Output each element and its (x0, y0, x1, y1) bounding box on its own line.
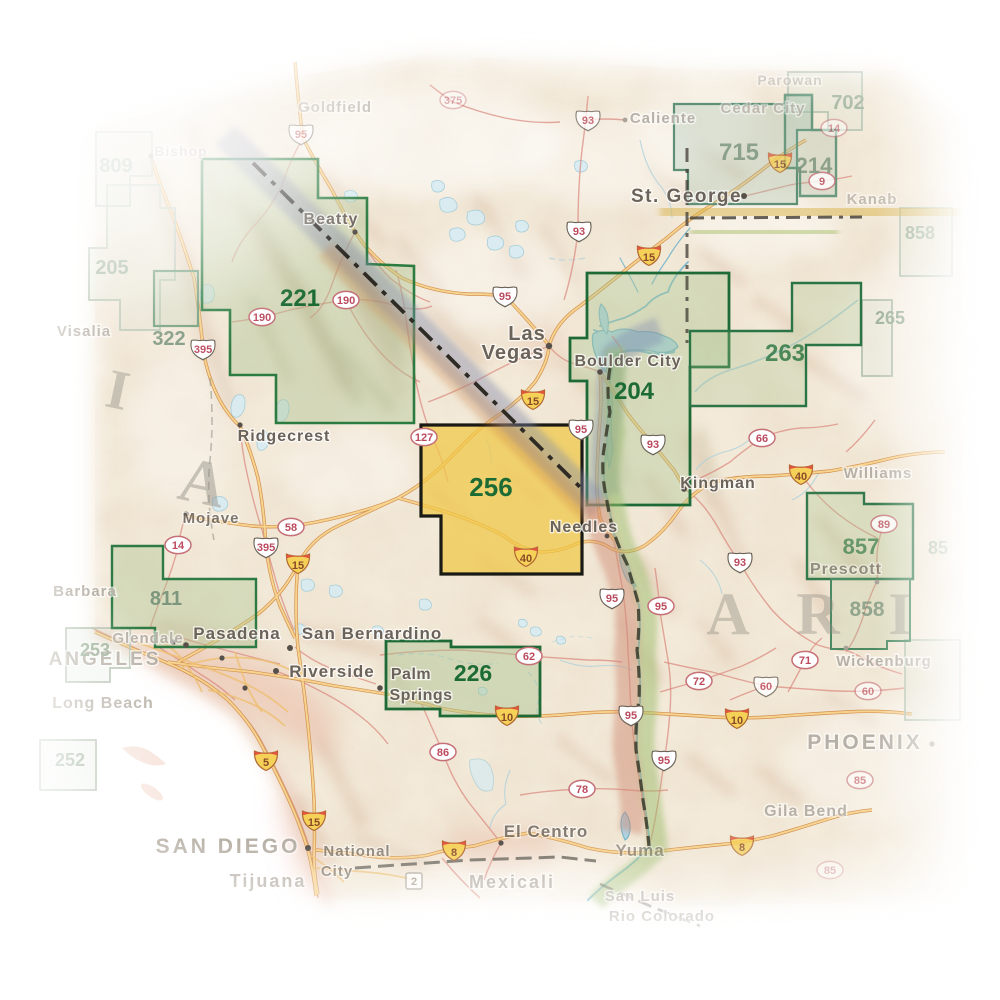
svg-text:El Centro: El Centro (504, 822, 589, 841)
svg-text:15: 15 (527, 396, 539, 408)
svg-text:Kanab: Kanab (847, 191, 898, 208)
svg-text:40: 40 (520, 553, 532, 565)
svg-text:Riverside: Riverside (289, 662, 375, 681)
svg-text:14: 14 (172, 540, 185, 552)
svg-text:190: 190 (337, 295, 355, 307)
svg-text:702: 702 (831, 92, 864, 114)
svg-text:190: 190 (253, 312, 271, 324)
svg-text:858: 858 (905, 223, 935, 243)
svg-text:15: 15 (308, 817, 320, 829)
svg-text:85: 85 (928, 538, 948, 558)
svg-text:2: 2 (411, 876, 417, 888)
svg-text:St. George: St. George (631, 186, 742, 207)
svg-text:Visalia: Visalia (57, 323, 111, 340)
svg-text:10: 10 (731, 715, 743, 727)
svg-text:Boulder City: Boulder City (574, 353, 681, 370)
svg-text:14: 14 (828, 123, 841, 135)
svg-text:715: 715 (719, 139, 759, 166)
svg-text:263: 263 (765, 340, 805, 367)
svg-text:93: 93 (734, 557, 746, 569)
svg-text:Parowan: Parowan (757, 72, 822, 88)
svg-text:San Bernardino: San Bernardino (302, 624, 443, 643)
svg-text:205: 205 (95, 257, 128, 279)
svg-text:15: 15 (774, 159, 786, 171)
svg-text:204: 204 (614, 378, 655, 405)
svg-text:811: 811 (150, 588, 182, 610)
svg-text:Barbara: Barbara (53, 583, 117, 600)
svg-text:Vegas: Vegas (482, 342, 545, 364)
svg-text:78: 78 (576, 784, 588, 796)
svg-text:SAN DIEGO: SAN DIEGO (156, 835, 301, 858)
svg-text:86: 86 (437, 747, 449, 759)
svg-text:72: 72 (693, 676, 705, 688)
svg-text:15: 15 (292, 560, 304, 572)
svg-text:8: 8 (451, 847, 457, 859)
svg-text:Wickenburg: Wickenburg (836, 653, 932, 670)
svg-text:60: 60 (760, 681, 772, 693)
svg-text:Pasadena: Pasadena (193, 624, 280, 643)
svg-text:Caliente: Caliente (630, 110, 696, 127)
svg-text:89: 89 (878, 519, 890, 531)
svg-text:95: 95 (295, 129, 307, 141)
svg-text:Gila Bend: Gila Bend (764, 803, 848, 820)
svg-text:221: 221 (280, 285, 320, 312)
svg-text:858: 858 (849, 598, 884, 621)
svg-text:265: 265 (875, 308, 905, 328)
svg-text:93: 93 (647, 439, 659, 451)
svg-text:395: 395 (194, 344, 212, 356)
svg-text:Tijuana: Tijuana (230, 871, 307, 891)
svg-text:Long Beach: Long Beach (52, 695, 154, 712)
svg-text:Beatty: Beatty (304, 211, 359, 228)
svg-text:National: National (323, 843, 390, 860)
svg-text:95: 95 (499, 291, 511, 303)
svg-text:62: 62 (523, 651, 535, 663)
svg-text:Kingman: Kingman (680, 475, 755, 492)
svg-text:R: R (796, 581, 840, 647)
svg-text:Palm: Palm (391, 666, 431, 683)
svg-text:City: City (321, 863, 353, 880)
svg-text:95: 95 (625, 710, 637, 722)
svg-text:253: 253 (80, 640, 110, 660)
svg-text:Mojave: Mojave (183, 510, 240, 527)
svg-text:40: 40 (795, 471, 807, 483)
svg-text:214: 214 (796, 153, 833, 178)
svg-text:95: 95 (606, 593, 618, 605)
svg-text:8: 8 (739, 842, 745, 854)
svg-text:226: 226 (454, 660, 492, 686)
svg-text:Ridgecrest: Ridgecrest (238, 428, 331, 445)
svg-text:93: 93 (582, 115, 594, 127)
svg-text:I: I (888, 581, 911, 647)
svg-text:10: 10 (501, 712, 513, 724)
svg-text:San Luis: San Luis (605, 888, 676, 905)
svg-text:256: 256 (469, 472, 512, 502)
svg-text:127: 127 (415, 432, 433, 444)
svg-text:Needles: Needles (550, 519, 618, 536)
svg-text:Bishop: Bishop (154, 143, 207, 159)
svg-text:Mexicali: Mexicali (469, 872, 555, 892)
svg-text:322: 322 (152, 328, 185, 350)
svg-text:Glendale: Glendale (112, 630, 183, 647)
svg-text:85: 85 (824, 865, 836, 877)
svg-text:95: 95 (658, 755, 670, 767)
svg-text:Cedar City: Cedar City (720, 100, 805, 117)
svg-text:857: 857 (843, 534, 880, 559)
svg-text:A: A (706, 581, 749, 647)
svg-text:809: 809 (99, 155, 132, 177)
svg-text:58: 58 (285, 522, 297, 534)
svg-text:85: 85 (854, 775, 866, 787)
svg-text:Williams: Williams (844, 465, 913, 482)
svg-text:Springs: Springs (389, 687, 452, 704)
svg-text:Prescott: Prescott (810, 561, 882, 578)
svg-text:15: 15 (643, 252, 655, 264)
svg-text:95: 95 (575, 424, 587, 436)
svg-text:Yuma: Yuma (615, 841, 664, 860)
svg-text:395: 395 (257, 542, 275, 554)
svg-text:95: 95 (655, 601, 667, 613)
svg-text:71: 71 (799, 655, 811, 667)
svg-text:93: 93 (573, 226, 585, 238)
svg-text:5: 5 (263, 757, 269, 769)
svg-text:PHOENIX: PHOENIX (807, 731, 923, 754)
svg-text:252: 252 (55, 750, 85, 770)
svg-text:66: 66 (756, 433, 768, 445)
svg-text:60: 60 (862, 686, 874, 698)
svg-text:Rio Colorado: Rio Colorado (609, 908, 715, 925)
svg-text:375: 375 (444, 95, 462, 107)
svg-text:Goldfield: Goldfield (298, 99, 372, 116)
